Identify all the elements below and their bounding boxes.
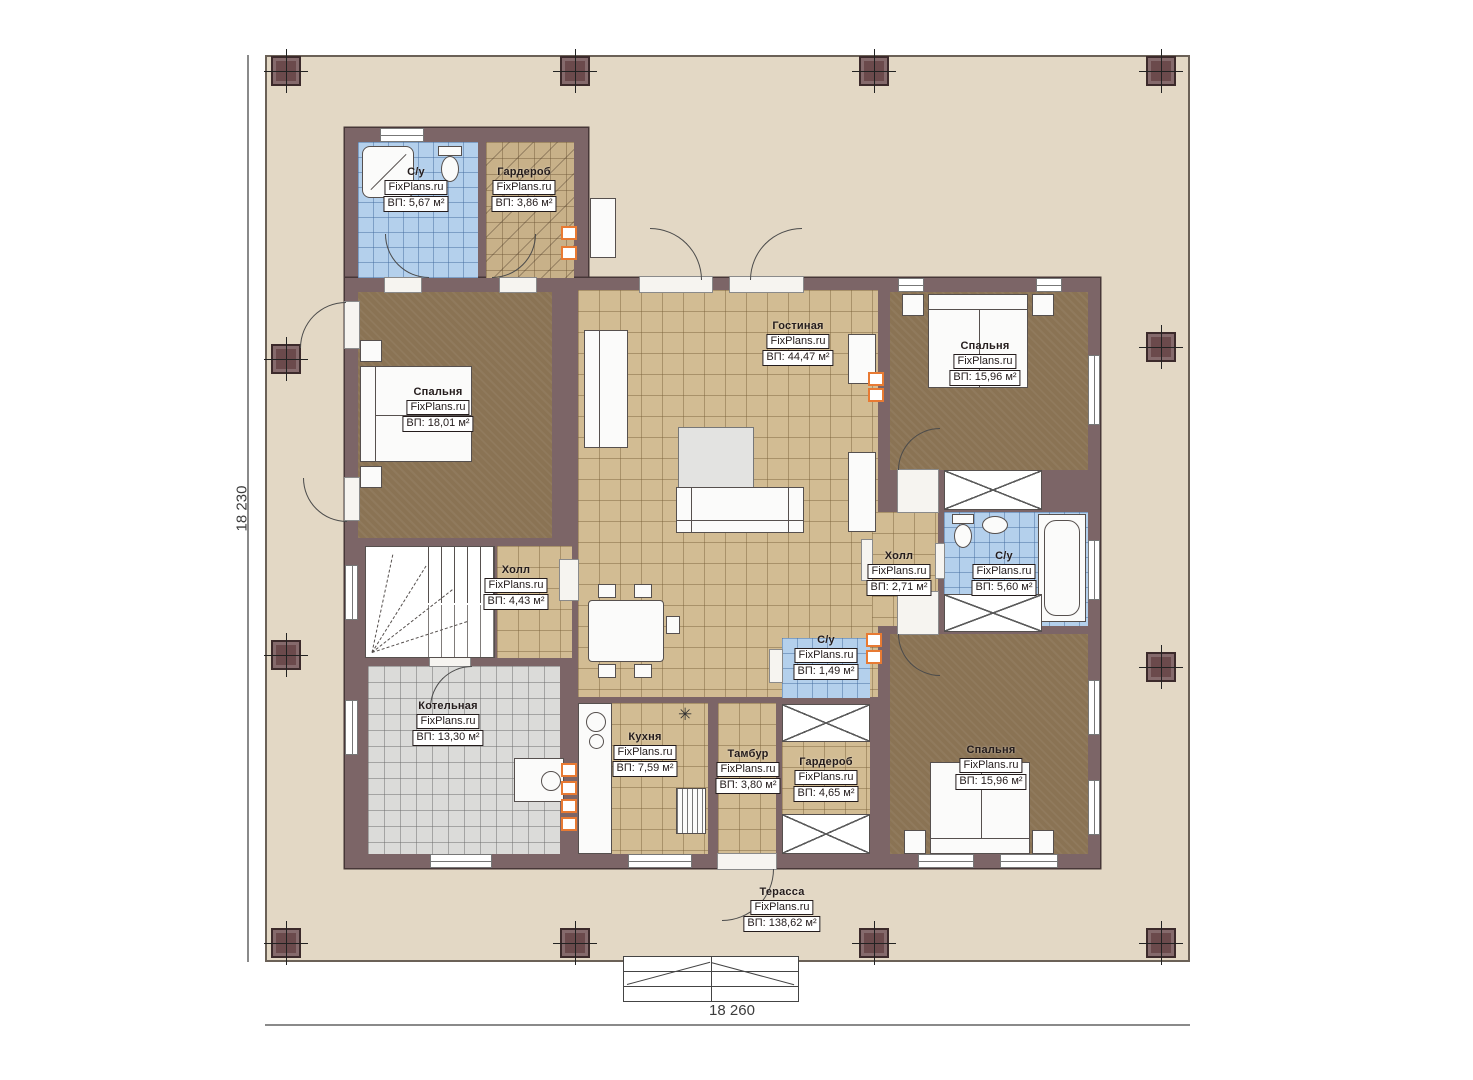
entry-door-opening xyxy=(718,854,776,869)
room-label-bathroom-right: С/у FixPlans.ru ВП: 5,60 м² xyxy=(971,550,1036,596)
door-opening-bedroom-top-right xyxy=(898,470,938,512)
room-watermark: FixPlans.ru xyxy=(972,564,1035,579)
room-area: ВП: 44,47 м² xyxy=(762,350,833,365)
terrace-post xyxy=(271,56,301,86)
room-area: ВП: 15,96 м² xyxy=(949,370,1020,385)
kitchen-counter xyxy=(578,703,612,854)
room-name: Терасса xyxy=(759,886,804,899)
room-label-living: Гостиная FixPlans.ru ВП: 44,47 м² xyxy=(762,320,833,366)
room-label-wardrobe-top: Гардероб FixPlans.ru ВП: 3,86 м² xyxy=(491,166,556,212)
room-area: ВП: 4,65 м² xyxy=(793,786,858,801)
room-area: ВП: 13,30 м² xyxy=(412,730,483,745)
dimension-label-bottom: 18 260 xyxy=(697,1002,767,1019)
bed-headboard-line xyxy=(375,367,376,461)
door-opening-boiler xyxy=(430,658,470,666)
door-opening-wc xyxy=(770,650,782,682)
room-label-hall-stairs: Холл FixPlans.ru ВП: 4,43 м² xyxy=(483,564,548,610)
side-cabinet xyxy=(848,452,876,532)
terrace-post xyxy=(1146,652,1176,682)
cooker-hood-symbol: ✳ xyxy=(678,706,692,723)
window xyxy=(1088,780,1100,835)
vent-marker xyxy=(561,817,577,831)
room-name: Холл xyxy=(885,550,913,563)
window xyxy=(1036,278,1062,292)
room-label-wc-small: С/у FixPlans.ru ВП: 1,49 м² xyxy=(793,634,858,680)
room-area: ВП: 5,67 м² xyxy=(383,196,448,211)
terrace-post xyxy=(859,928,889,958)
door-opening-bedroom-bottom-right xyxy=(898,592,938,634)
room-area: ВП: 7,59 м² xyxy=(612,761,677,776)
room-name: Спальня xyxy=(961,340,1010,353)
room-name: Гостиная xyxy=(772,320,823,333)
terrace-post xyxy=(271,928,301,958)
dining-chair xyxy=(634,584,652,598)
bathtub xyxy=(1038,514,1086,622)
sofa-back-line xyxy=(677,520,803,521)
room-name: Котельная xyxy=(418,700,477,713)
room-name: Гардероб xyxy=(799,756,853,769)
room-name: Спальня xyxy=(967,744,1016,757)
vent-marker xyxy=(561,799,577,813)
vent-marker xyxy=(868,388,884,402)
terrace-post xyxy=(271,344,301,374)
room-watermark: FixPlans.ru xyxy=(867,564,930,579)
room-watermark: FixPlans.ru xyxy=(384,180,447,195)
room-watermark: FixPlans.ru xyxy=(484,578,547,593)
terrace-post xyxy=(271,640,301,670)
room-name: Гардероб xyxy=(497,166,551,179)
sofa-armrest xyxy=(691,488,692,532)
dining-chair xyxy=(634,664,652,678)
room-name: С/у xyxy=(817,634,835,647)
room-area: ВП: 4,43 м² xyxy=(483,594,548,609)
room-name: Тамбур xyxy=(727,748,768,761)
vent-marker xyxy=(561,763,577,777)
room-area: ВП: 138,62 м² xyxy=(743,916,820,931)
window xyxy=(1088,680,1100,735)
room-watermark: FixPlans.ru xyxy=(766,334,829,349)
kitchen-sink xyxy=(586,712,606,732)
room-watermark: FixPlans.ru xyxy=(613,745,676,760)
vent-marker xyxy=(868,372,884,386)
tv-cabinet-line xyxy=(599,331,600,447)
vent-marker xyxy=(866,650,882,664)
room-area: ВП: 2,71 м² xyxy=(866,580,931,595)
room-area: ВП: 5,60 м² xyxy=(971,580,1036,595)
terrace-post xyxy=(1146,56,1176,86)
room-name: Кухня xyxy=(628,731,661,744)
window xyxy=(345,700,358,755)
closet-x xyxy=(944,594,1042,632)
closet-x xyxy=(782,704,870,742)
closet-x xyxy=(782,814,870,854)
room-watermark: FixPlans.ru xyxy=(416,714,479,729)
room-area: ВП: 3,86 м² xyxy=(491,196,556,211)
room-name: С/у xyxy=(407,166,425,179)
nightstand xyxy=(904,830,926,854)
toilet-tank-top xyxy=(438,146,462,156)
dining-table xyxy=(588,600,664,662)
window xyxy=(1088,540,1100,600)
vent-marker xyxy=(561,781,577,795)
bed-headboard-line xyxy=(931,838,1029,839)
bed-headboard-line xyxy=(929,309,1027,310)
nightstand xyxy=(902,294,924,316)
window xyxy=(345,565,358,620)
dimension-line-bottom xyxy=(265,1024,1190,1026)
window xyxy=(380,128,424,142)
coffee-table xyxy=(678,427,754,491)
door-opening-bathroom-top xyxy=(385,278,421,292)
terrace-post xyxy=(859,56,889,86)
boiler-dial xyxy=(541,771,561,791)
window xyxy=(1088,355,1100,425)
boiler-unit xyxy=(514,758,564,802)
room-area: ВП: 18,01 м² xyxy=(402,416,473,431)
toilet-bowl-right xyxy=(954,524,972,548)
room-watermark: FixPlans.ru xyxy=(953,354,1016,369)
window xyxy=(628,854,692,868)
dining-chair xyxy=(598,584,616,598)
vent-marker xyxy=(561,246,577,260)
kitchen-appliance xyxy=(676,788,706,834)
window xyxy=(898,278,924,292)
room-area: ВП: 3,80 м² xyxy=(715,778,780,793)
window xyxy=(430,854,492,868)
room-label-wardrobe-bottom: Гардероб FixPlans.ru ВП: 4,65 м² xyxy=(793,756,858,802)
nightstand xyxy=(360,340,382,362)
door-opening-wardrobe-top xyxy=(500,278,536,292)
vent-marker xyxy=(866,633,882,647)
washbasin xyxy=(982,516,1008,534)
room-watermark: FixPlans.ru xyxy=(406,400,469,415)
kitchen-sink-small xyxy=(589,734,604,749)
nightstand xyxy=(360,466,382,488)
room-area: ВП: 1,49 м² xyxy=(793,664,858,679)
terrace-post xyxy=(1146,332,1176,362)
sofa-armrest xyxy=(788,488,789,532)
door-opening-left-terrace xyxy=(345,478,359,520)
room-label-vestibule: Тамбур FixPlans.ru ВП: 3,80 м² xyxy=(715,748,780,794)
room-name: С/у xyxy=(995,550,1013,563)
toilet-tank-right xyxy=(952,514,974,524)
room-label-boiler: Котельная FixPlans.ru ВП: 13,30 м² xyxy=(412,700,483,746)
nightstand xyxy=(1032,830,1054,854)
terrace-post xyxy=(560,56,590,86)
window xyxy=(918,854,974,868)
door-opening-hall-living xyxy=(560,560,578,600)
room-label-terrace: Терасса FixPlans.ru ВП: 138,62 м² xyxy=(743,886,820,932)
room-name: Спальня xyxy=(414,386,463,399)
room-label-bathroom-top: С/у FixPlans.ru ВП: 5,67 м² xyxy=(383,166,448,212)
room-watermark: FixPlans.ru xyxy=(959,758,1022,773)
room-label-kitchen: Кухня FixPlans.ru ВП: 7,59 м² xyxy=(612,731,677,777)
vent-marker xyxy=(561,226,577,240)
room-name: Холл xyxy=(502,564,530,577)
room-watermark: FixPlans.ru xyxy=(492,180,555,195)
room-watermark: FixPlans.ru xyxy=(750,900,813,915)
floor-plan: ✳ xyxy=(0,0,1473,1080)
room-label-bedroom-left: Спальня FixPlans.ru ВП: 18,01 м² xyxy=(402,386,473,432)
door-opening-bedroom-terrace xyxy=(345,302,359,348)
closet-x xyxy=(944,470,1042,510)
wall-mounted-unit xyxy=(590,198,616,258)
terrace-post xyxy=(1146,928,1176,958)
room-watermark: FixPlans.ru xyxy=(716,762,779,777)
room-label-bedroom-top-right: Спальня FixPlans.ru ВП: 15,96 м² xyxy=(949,340,1020,386)
nightstand xyxy=(1032,294,1054,316)
room-label-bedroom-bottom-right: Спальня FixPlans.ru ВП: 15,96 м² xyxy=(955,744,1026,790)
bathtub-inner xyxy=(1044,520,1080,616)
sofa xyxy=(676,487,804,533)
room-watermark: FixPlans.ru xyxy=(794,770,857,785)
tv-cabinet xyxy=(584,330,628,448)
room-watermark: FixPlans.ru xyxy=(794,648,857,663)
dining-chair xyxy=(666,616,680,634)
room-label-hall-small: Холл FixPlans.ru ВП: 2,71 м² xyxy=(866,550,931,596)
window xyxy=(1000,854,1058,868)
dimension-label-left: 18 230 xyxy=(234,479,251,539)
dining-chair xyxy=(598,664,616,678)
terrace-post xyxy=(560,928,590,958)
room-area: ВП: 15,96 м² xyxy=(955,774,1026,789)
door-opening-bathroom-right xyxy=(936,544,944,578)
